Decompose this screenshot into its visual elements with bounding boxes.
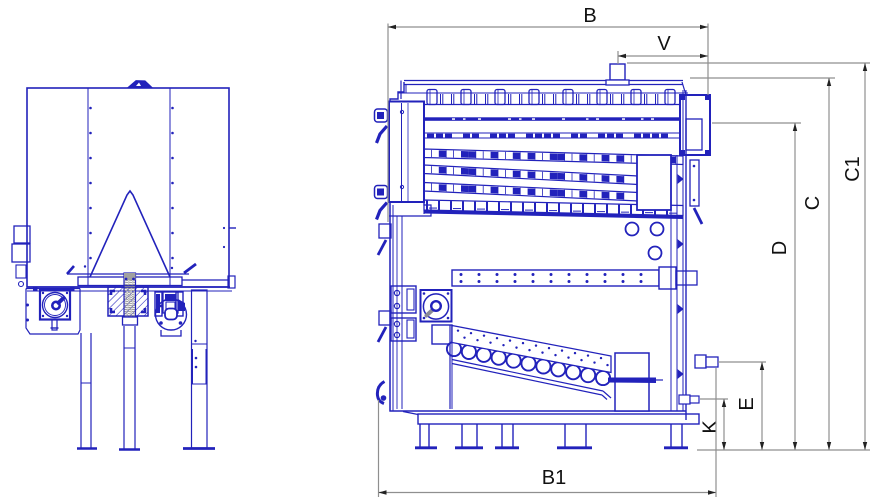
svg-text:K: K (700, 420, 722, 434)
svg-text:C1: C1 (842, 156, 864, 182)
svg-text:C: C (802, 196, 824, 210)
svg-text:B1: B1 (542, 467, 566, 489)
svg-text:D: D (769, 241, 791, 255)
svg-text:B: B (583, 5, 596, 27)
svg-text:V: V (657, 33, 671, 55)
svg-text:E: E (736, 397, 758, 410)
